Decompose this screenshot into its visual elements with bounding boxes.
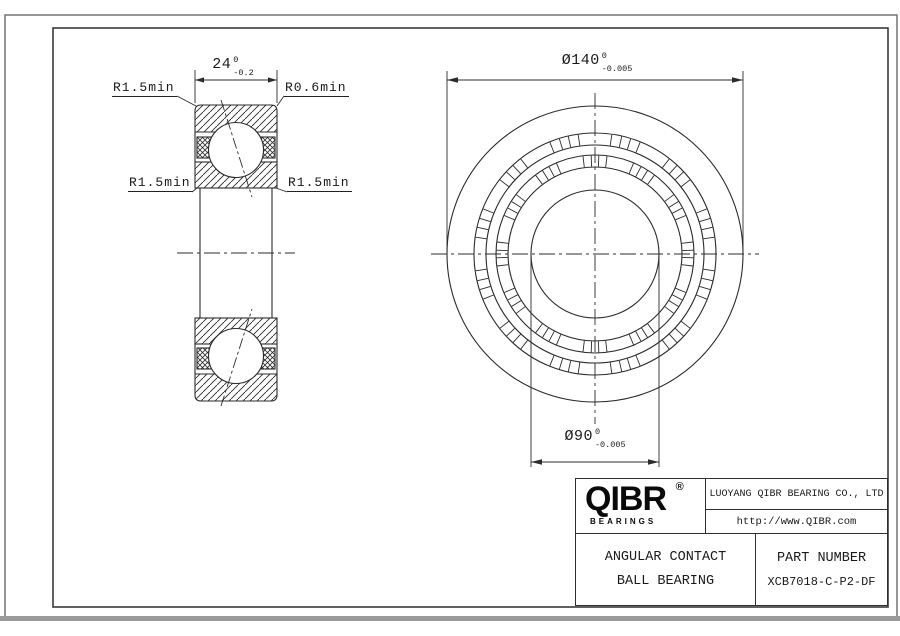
dimension-od-text: Ø140 0-0.005 bbox=[562, 52, 633, 74]
drawing-sheet: 24 0-0.2 Ø140 0-0.005 Ø90 0-0.005 R1.5mi… bbox=[0, 0, 900, 636]
front-view bbox=[431, 93, 759, 424]
dimension-od-value: Ø140 bbox=[562, 52, 600, 70]
dimension-od-tol-upper: 0 bbox=[602, 52, 633, 61]
company-name: LUOYANG QIBR BEARING CO., LTD bbox=[706, 479, 887, 510]
part-number-cell: PART NUMBER XCB7018-C-P2-DF bbox=[756, 534, 887, 605]
product-line1: ANGULAR CONTACT bbox=[605, 550, 727, 565]
logo-subtitle: BEARINGS bbox=[590, 517, 705, 526]
title-block: QIBR ® BEARINGS LUOYANG QIBR BEARING CO.… bbox=[575, 478, 888, 606]
company-website: http://www.QIBR.com bbox=[706, 510, 887, 533]
qibr-logo: QIBR bbox=[585, 480, 666, 518]
registered-trademark-icon: ® bbox=[676, 481, 684, 493]
dimension-width-value: 24 bbox=[212, 56, 231, 74]
dimension-bore-value: Ø90 bbox=[564, 428, 593, 446]
dimension-width-tol-lower: -0.2 bbox=[233, 69, 253, 78]
ball-bottom bbox=[209, 329, 264, 384]
label-radius-top-right: R0.6min bbox=[284, 80, 349, 97]
product-description: ANGULAR CONTACT BALL BEARING bbox=[576, 534, 756, 605]
dimension-bore-tol-upper: 0 bbox=[595, 428, 626, 437]
dimension-od-tol-lower: -0.005 bbox=[602, 65, 633, 74]
ball-top bbox=[209, 123, 264, 178]
product-line2: BALL BEARING bbox=[617, 574, 714, 589]
dimension-bore-text: Ø90 0-0.005 bbox=[564, 428, 625, 450]
logo-cell: QIBR ® BEARINGS bbox=[576, 479, 706, 533]
section-view bbox=[177, 100, 295, 406]
dimension-bore-tol-lower: -0.005 bbox=[595, 441, 626, 450]
part-number-label: PART NUMBER bbox=[777, 551, 866, 566]
dimension-width-tol-upper: 0 bbox=[233, 56, 253, 65]
label-radius-mid-left: R1.5min bbox=[128, 175, 193, 192]
part-number-value: XCB7018-C-P2-DF bbox=[767, 575, 875, 589]
sheet-bottom-edge bbox=[0, 616, 900, 621]
dimension-width-text: 24 0-0.2 bbox=[212, 56, 253, 78]
label-radius-top-left: R1.5min bbox=[112, 80, 177, 97]
label-radius-mid-right: R1.5min bbox=[287, 175, 352, 192]
